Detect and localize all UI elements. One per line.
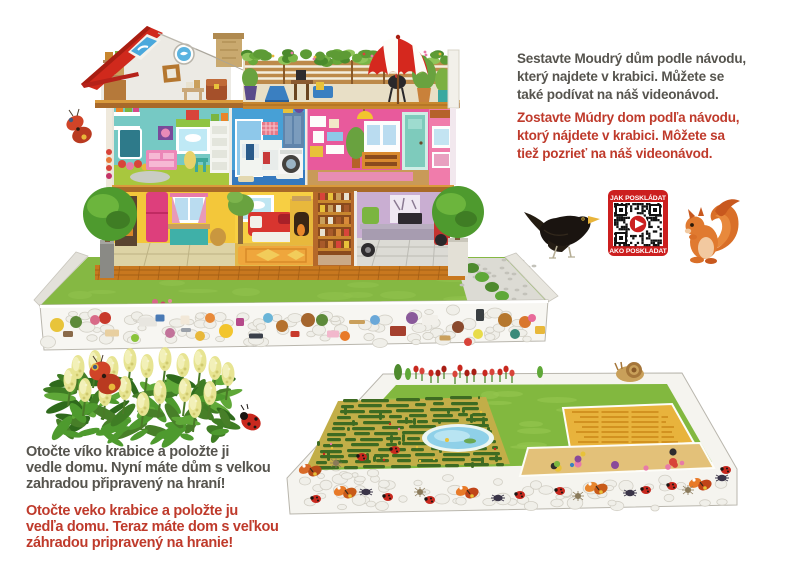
svg-text:AKO POSKLADAT: AKO POSKLADAT [609,248,667,255]
svg-text:záhradou pripravený na hranie!: záhradou pripravený na hranie! [26,535,233,551]
svg-text:JAK POSKLÁDAT: JAK POSKLÁDAT [610,193,667,202]
svg-text:Sestavte Moudrý dům podle návo: Sestavte Moudrý dům podle návodu, [517,51,746,66]
svg-text:vedle domu. Nyní máte dům s ve: vedle domu. Nyní máte dům s velkou [26,460,270,476]
svg-text:Zostavte Múdry dom podľa návod: Zostavte Múdry dom podľa návodu, [517,110,739,125]
svg-text:Otočte víko krabice a položte: Otočte víko krabice a položte ji [26,444,229,460]
svg-text:Otočte veko krabice a položte: Otočte veko krabice a položte ju [26,503,238,519]
svg-text:zahradou připravený na hraní!: zahradou připravený na hraní! [26,476,225,492]
svg-text:také podívat na náš videonávod: také podívat na náš videonávod. [517,87,719,102]
svg-text:ktorý nájdete v krabici. Môžet: ktorý nájdete v krabici. Môžete sa [517,128,725,143]
svg-text:tiež pozrieť na náš videonávod: tiež pozrieť na náš videonávod. [517,146,712,161]
svg-text:který najdete v krabici. Můžet: který najdete v krabici. Můžete se [517,69,725,84]
svg-text:vedľa domu. Teraz máte dom s v: vedľa domu. Teraz máte dom s veľkou [26,519,279,535]
